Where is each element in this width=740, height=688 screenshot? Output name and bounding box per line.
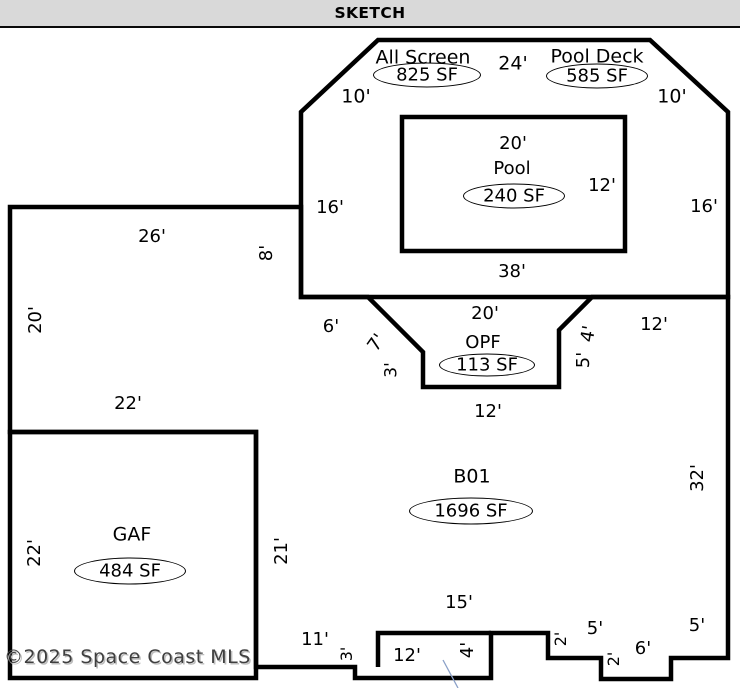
gaf-outline	[10, 432, 256, 678]
screen-enclosure-outline	[301, 40, 728, 297]
entry-box-outline	[378, 633, 491, 667]
pool-outline	[402, 117, 625, 251]
b01-outline	[10, 207, 728, 679]
copyright-watermark: ©2025 Space Coast MLS	[4, 646, 251, 668]
annotation-line	[443, 660, 458, 688]
sketch-page: SKETCH All Screen825 SF24'Pool Deck585 S…	[0, 0, 740, 688]
sketch-canvas	[0, 0, 740, 688]
